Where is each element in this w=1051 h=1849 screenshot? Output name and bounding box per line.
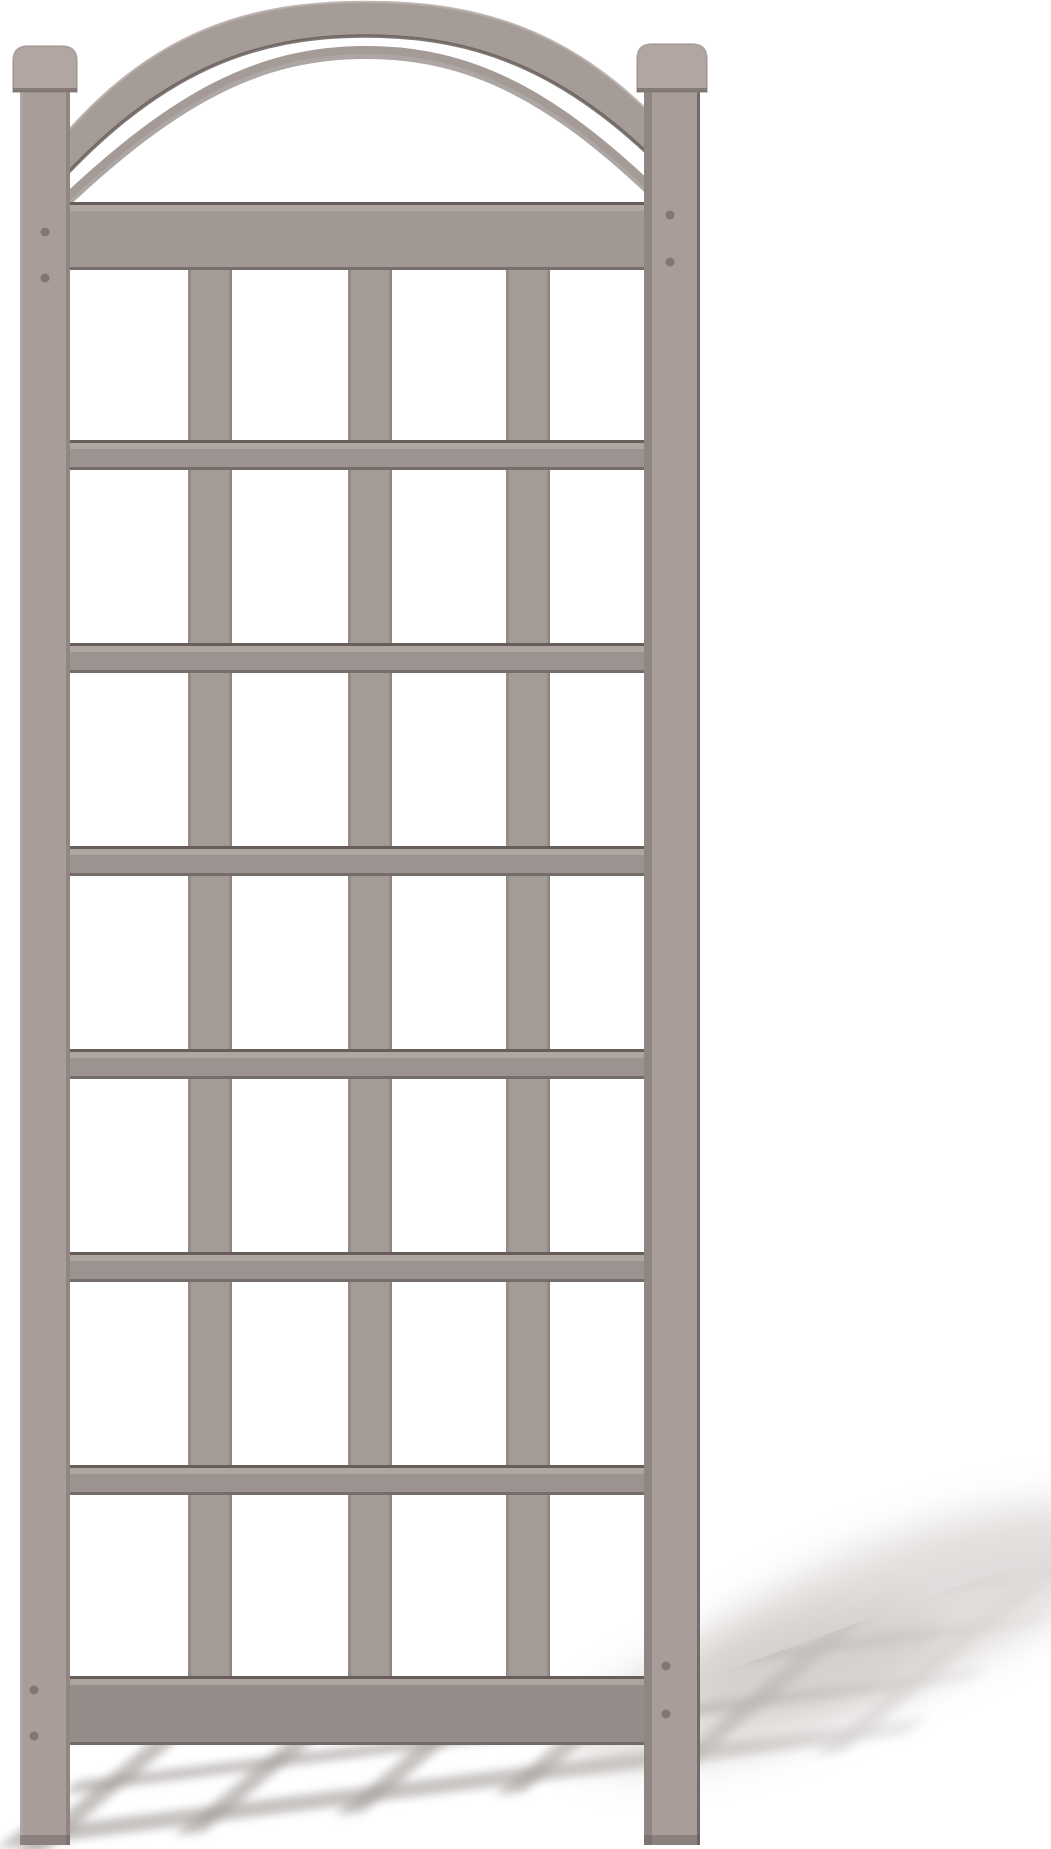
screw-dot: [662, 1710, 671, 1719]
left-post-cap: [13, 46, 77, 92]
arch-top-rail: [52, 2, 684, 206]
screw-dot: [662, 1662, 671, 1671]
lattice-rail: [70, 1465, 644, 1495]
footer-rail: [70, 1676, 644, 1745]
right-post: [644, 88, 700, 1845]
screw-dot: [666, 211, 675, 220]
lattice-rail: [70, 846, 644, 876]
lattice-rail: [70, 1049, 644, 1079]
trellis-illustration: [0, 0, 1051, 1849]
screw-dot: [666, 258, 675, 267]
screw-dot: [41, 274, 50, 283]
right-post-cap: [637, 44, 707, 92]
lattice-rail: [70, 1252, 644, 1282]
product-photo: [0, 0, 1051, 1849]
screw-dot: [30, 1732, 39, 1741]
screw-dot: [30, 1686, 39, 1695]
lattice-rail: [70, 440, 644, 470]
screw-dot: [41, 228, 50, 237]
left-post: [20, 88, 70, 1845]
lattice-rail: [70, 643, 644, 673]
header-rail: [70, 202, 644, 270]
